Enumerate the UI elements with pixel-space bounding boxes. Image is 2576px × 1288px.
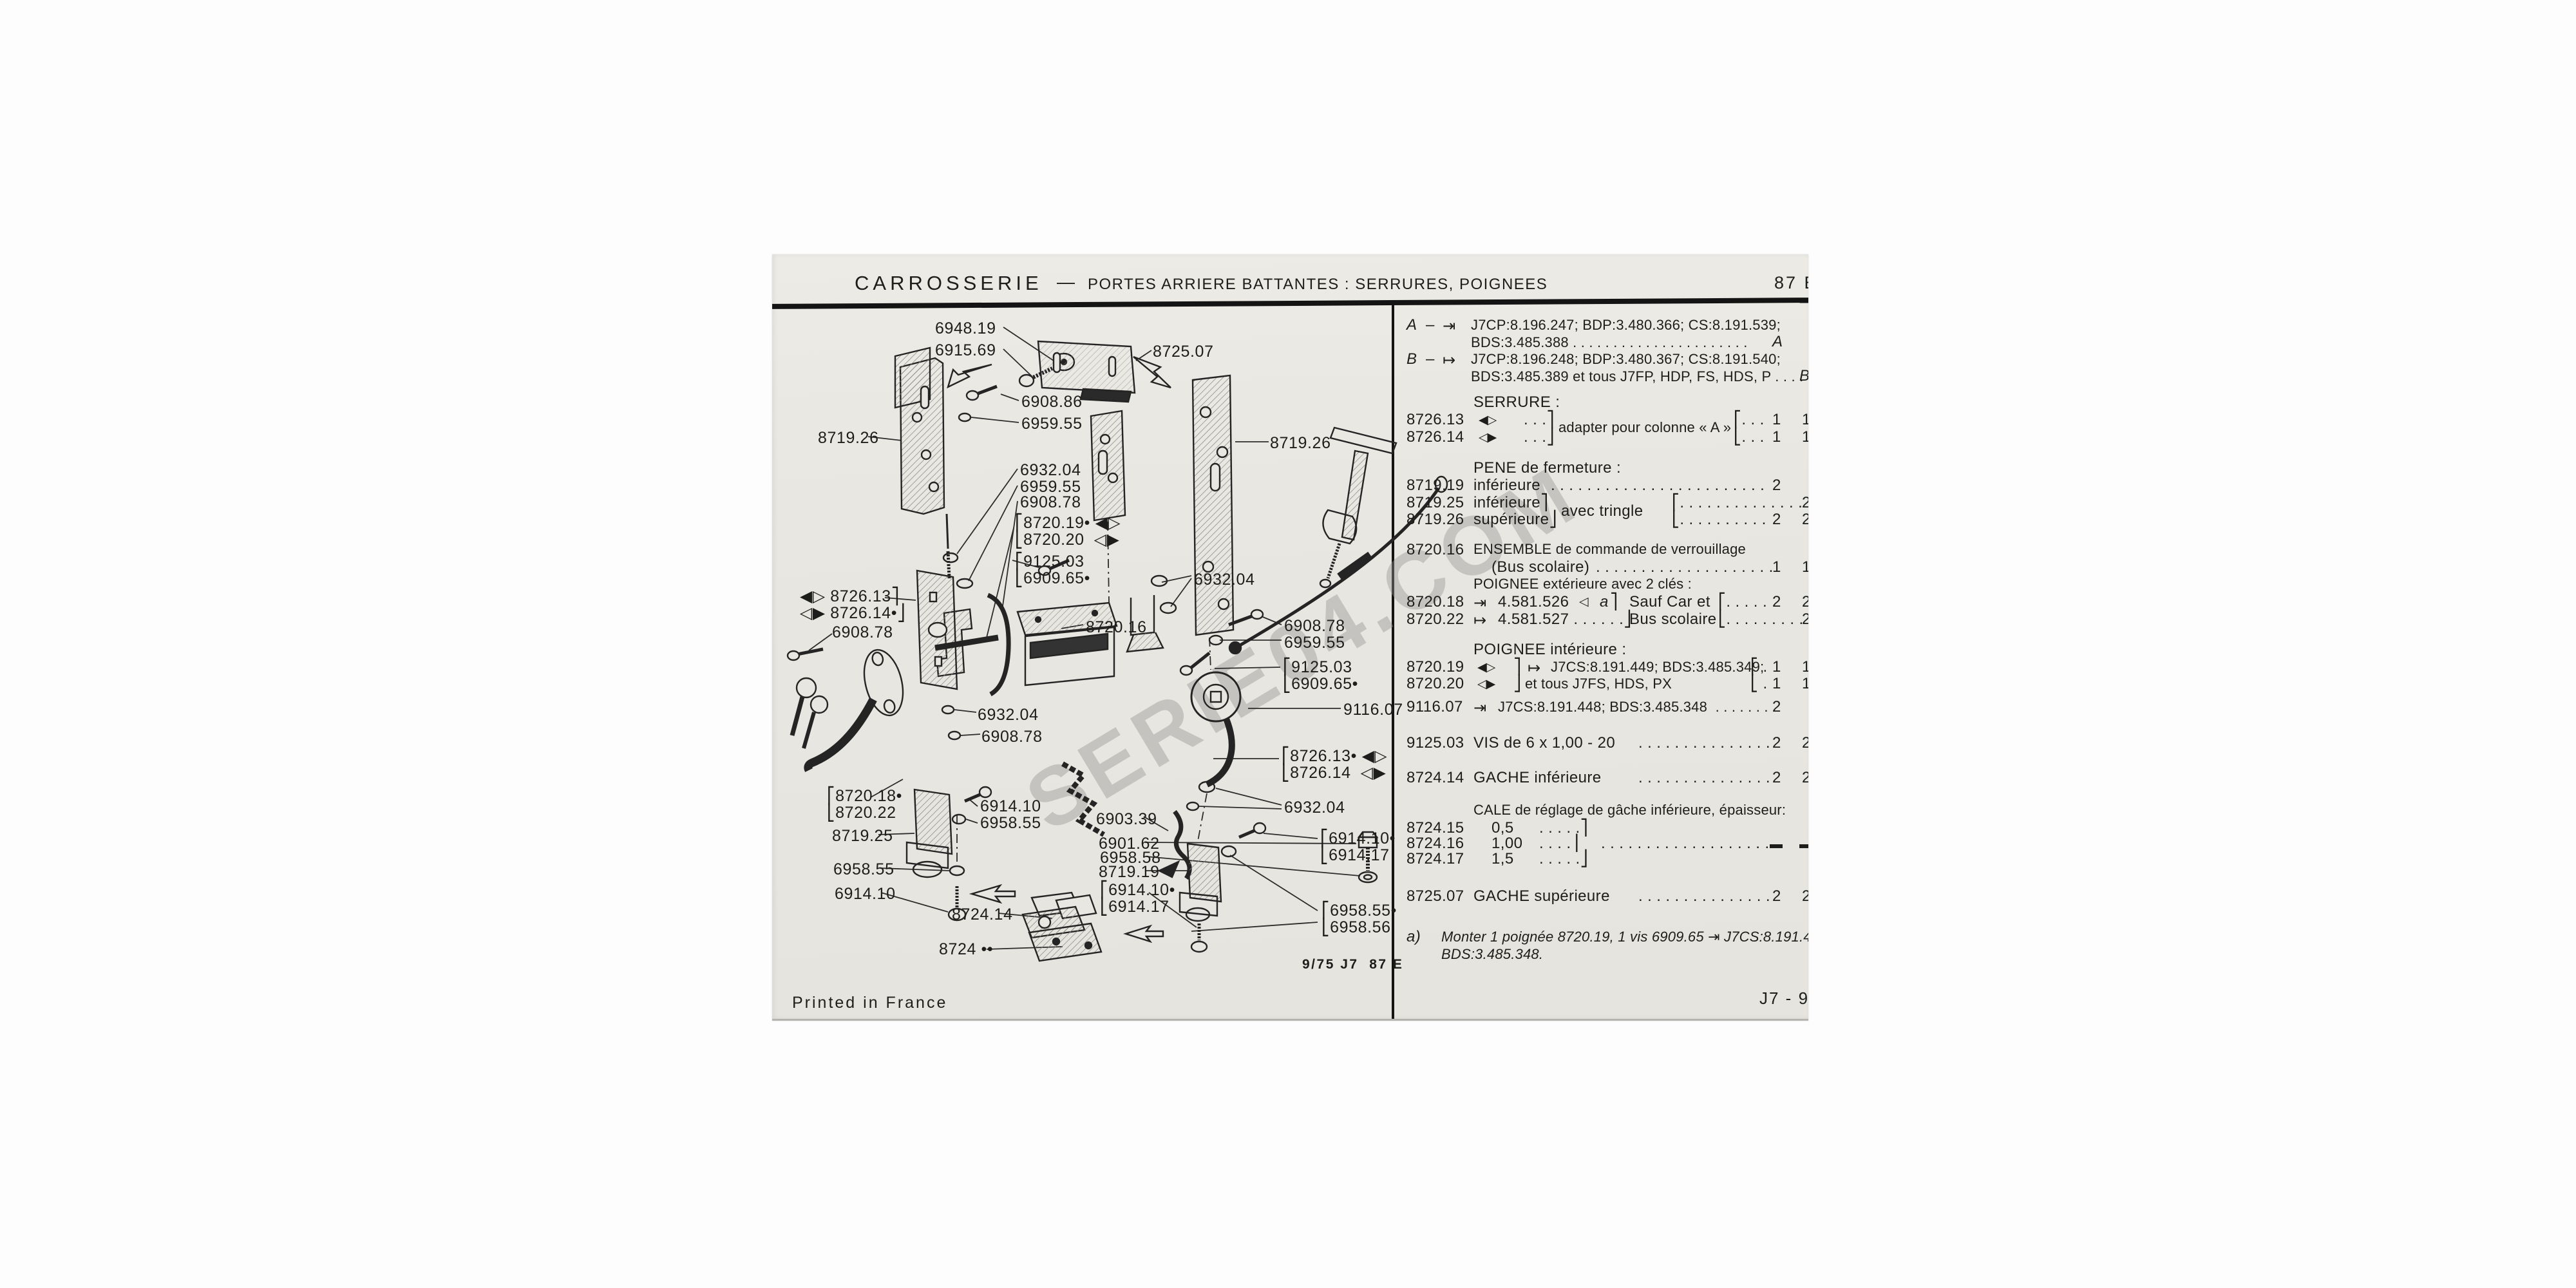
part-label: ⎣8720.22 <box>827 804 896 822</box>
part-label: ⎡8720.18• <box>827 787 902 806</box>
part-label: ⎡6914.10• <box>1320 829 1396 848</box>
part-label: 8719.26 <box>818 429 879 448</box>
list-text: 8720.20 <box>1406 676 1464 692</box>
part-label: 8719.19 <box>1099 863 1160 882</box>
part-label: ⎣8720.20 ◁▶ <box>1015 531 1119 549</box>
printed-in-france: Printed in France <box>792 994 947 1012</box>
list-text: 1 <box>1802 429 1808 446</box>
list-text: 8719.26 <box>1406 511 1464 528</box>
part-label: 9116.07 <box>1343 701 1403 719</box>
list-text: . . . . .⎦ <box>1539 851 1588 867</box>
list-text: (Bus scolaire) <box>1492 559 1589 576</box>
list-text: . . .⎦ <box>1524 429 1555 446</box>
catalog-page: CARROSSERIE — PORTES ARRIERE BATTANTES :… <box>772 254 1808 1021</box>
list-text: Sauf Car et <box>1629 594 1710 611</box>
list-text: 8720.19 <box>1406 659 1464 676</box>
list-text: ⎣. . . . . . . . . . <box>1672 511 1766 528</box>
list-text: A <box>1772 334 1783 350</box>
part-label: ⎡6914.10• <box>1100 881 1175 900</box>
part-label: ⎡6958.55• <box>1321 902 1397 920</box>
part-label: 6959.55 <box>1021 415 1083 433</box>
list-text: supérieure⎦ <box>1473 511 1557 528</box>
list-text: 2 <box>1772 511 1781 528</box>
list-text: BDS:3.485.389 et tous J7FP, HDP, FS, HDS… <box>1471 369 1808 384</box>
list-text: ⎡ . <box>1750 659 1768 676</box>
part-label: 9/75 J7 87 E <box>1302 957 1403 972</box>
list-text: ↦ <box>1528 660 1541 677</box>
list-text: ▬ <box>1770 837 1783 851</box>
part-label: ⎡9125.03 <box>1015 553 1084 571</box>
list-text: 2 <box>1802 594 1808 611</box>
list-text: 8719.19 <box>1406 477 1464 494</box>
part-label: 6908.78 <box>832 623 893 642</box>
list-text: – <box>1426 351 1435 368</box>
list-text: B <box>1406 351 1417 368</box>
list-text: PENE de fermeture : <box>1473 460 1621 477</box>
list-text: 1 <box>1802 676 1808 692</box>
part-label: 8725.07 <box>1153 343 1214 361</box>
list-text: ENSEMBLE de commande de verrouillage <box>1473 542 1746 557</box>
list-text: 2 <box>1772 735 1781 752</box>
list-text: 8719.25 <box>1406 495 1464 511</box>
list-text: ◀▷ <box>1477 661 1495 675</box>
list-text: . . . . . . . . . . . . . . . <box>1638 735 1770 752</box>
part-label: 6932.04 <box>1020 461 1081 480</box>
part-label: 6915.69 <box>935 341 996 360</box>
list-text: SERRURE : <box>1473 394 1560 411</box>
list-text: . . .⎤ <box>1524 412 1555 428</box>
list-text: 2 <box>1802 495 1808 511</box>
list-text: ◀▷ <box>1479 414 1496 428</box>
list-text: POIGNEE extérieure avec 2 clés : <box>1473 576 1692 592</box>
list-text: GACHE inférieure <box>1473 770 1601 786</box>
list-text: . . . . . . . . . . . . . . . <box>1638 888 1770 905</box>
list-text: 1 <box>1772 676 1781 692</box>
list-text: ⎣. . . . . . . . . <box>1718 611 1804 628</box>
part-label: ⎣6914.17 <box>1320 846 1390 865</box>
part-label: ⎣8726.14 ◁▶ <box>1282 764 1386 782</box>
part-label: 8719.25 <box>832 827 893 846</box>
part-label: 6958.55 <box>833 860 895 879</box>
part-label: 6914.10 <box>835 885 896 904</box>
list-text: – <box>1426 317 1435 334</box>
list-text: CALE de réglage de gâche inférieure, épa… <box>1473 802 1786 818</box>
list-text: A <box>1406 317 1417 334</box>
list-text: 9116.07 <box>1406 699 1463 715</box>
list-text: 2 <box>1802 770 1808 786</box>
part-label: 6948.19 <box>935 319 996 338</box>
part-label: 8724.14 <box>952 905 1013 924</box>
screenshot-root: { "header": { "title_main": "CARROSSERIE… <box>0 0 2576 1288</box>
list-text: 2 <box>1802 735 1808 752</box>
list-text: J7CS:8.191.449; BDS:3.485.349; <box>1551 659 1764 675</box>
list-text: 2 <box>1802 511 1808 528</box>
list-text: . . . . . . . . . . . . . . . . . . . . <box>1596 559 1774 576</box>
list-text: a) <box>1406 929 1421 945</box>
list-text: a <box>1600 594 1609 611</box>
part-label: 6903.39 <box>1096 810 1157 829</box>
list-text: J7CP:8.196.248; BDP:3.480.367; CS:8.191.… <box>1471 352 1781 367</box>
part-label: ⎡8726.13• ◀▷ <box>1282 747 1387 766</box>
list-text: J7CP:8.196.247; BDP:3.480.366; CS:8.191.… <box>1471 317 1781 333</box>
list-text: 1 <box>1802 659 1808 676</box>
list-text: ⎤ <box>1513 659 1521 676</box>
list-text: ⎡. . . <box>1734 412 1765 428</box>
list-text: ⇥ <box>1473 595 1487 612</box>
list-text: 8720.16 <box>1406 542 1464 558</box>
list-text: 8725.07 <box>1406 888 1464 905</box>
list-text: . . . . . . . . . . . . . . . . . . . . … <box>1551 477 1765 494</box>
list-text: ⇥ <box>1443 318 1456 335</box>
list-text: ◁▶ <box>1479 431 1496 445</box>
part-label: ⎣6958.56 <box>1321 918 1391 937</box>
list-text: 1,5 <box>1492 851 1514 867</box>
list-text: GACHE supérieure <box>1473 888 1610 905</box>
part-label: 6908.78 <box>1284 617 1345 636</box>
list-text: adapter pour colonne « A » <box>1558 420 1731 435</box>
list-text: 2 <box>1802 888 1808 905</box>
part-label: 8720.16 <box>1086 618 1147 637</box>
list-text: . . . . . . . . . . . . . . . <box>1638 770 1770 786</box>
list-text: ▬ <box>1799 837 1808 851</box>
list-text: inférieure⎤ <box>1473 495 1548 511</box>
list-text: ⎦ <box>1513 676 1521 692</box>
list-text: 2 <box>1772 594 1781 611</box>
list-text: BDS:3.485.388 . . . . . . . . . . . . . … <box>1471 335 1748 350</box>
list-text: ⎤ <box>1610 594 1618 611</box>
part-label: 6932.04 <box>1194 571 1255 589</box>
list-text: BDS:3.485.348. <box>1441 947 1543 962</box>
list-text: 1 <box>1772 659 1781 676</box>
part-label: ⎣6909.65• <box>1015 569 1090 588</box>
part-label: 6932.04 <box>1284 799 1345 817</box>
list-text: 8724.14 <box>1406 770 1464 786</box>
list-text: 8720.22 <box>1406 611 1464 628</box>
list-text: 4.581.526 <box>1498 594 1569 611</box>
part-label: 6914.10 <box>980 797 1041 816</box>
list-text: avec tringle <box>1561 503 1643 520</box>
list-text: 4.581.527 . . . . . .⎦ <box>1498 611 1632 628</box>
list-text: POIGNEE intérieure : <box>1473 641 1626 658</box>
list-text: J7CS:8.191.448; BDS:3.485.348 . . . . . … <box>1498 699 1776 715</box>
part-label: 6908.78 <box>1020 493 1081 512</box>
part-label: 6958.55 <box>980 814 1041 833</box>
list-text: 2 <box>1772 699 1781 715</box>
list-text: ◁ <box>1579 596 1588 609</box>
list-text: 1 <box>1772 559 1781 576</box>
list-text: 2 <box>1772 770 1781 786</box>
list-text: 1 <box>1802 412 1808 428</box>
part-label: 6959.55 <box>1284 634 1345 652</box>
list-text: Monter 1 poignée 8720.19, 1 vis 6909.65 … <box>1441 929 1808 945</box>
list-text: ↦ <box>1473 612 1487 629</box>
list-text: . . . . . . . . . . . . . . . . . . . <box>1601 835 1770 852</box>
list-text: 9125.03 <box>1406 735 1464 752</box>
list-text: 1 <box>1802 559 1808 576</box>
page-footer-ref: J7 - 9/75 <box>1759 989 1808 1009</box>
list-text: ◁▶ <box>1477 678 1495 692</box>
part-label: 6932.04 <box>978 706 1039 724</box>
list-text: 1 <box>1772 429 1781 446</box>
list-text: 1 <box>1772 412 1781 428</box>
list-text: ⎣. . . <box>1734 429 1765 446</box>
part-label: 6908.78 <box>981 728 1043 746</box>
part-label: ⎣6914.17 <box>1100 898 1170 916</box>
list-text: et tous J7FS, HDS, PX <box>1525 676 1672 692</box>
part-label: ⎣6909.65• <box>1283 675 1358 694</box>
list-text: ↦ <box>1443 352 1456 369</box>
list-text: 2 <box>1802 611 1808 628</box>
part-label: ◀▷ 8726.13⎤ <box>800 587 900 606</box>
part-label: 6908.86 <box>1021 393 1083 412</box>
list-text: B <box>1799 368 1808 384</box>
list-text: ⎡. . . . . . . . . . . . . . <box>1672 495 1803 511</box>
list-text: VIS de 6 x 1,00 - 20 <box>1473 735 1615 752</box>
list-text: 8726.14 <box>1406 429 1464 446</box>
part-label: ◁▶ 8726.14•⎦ <box>800 604 905 623</box>
list-text: Bus scolaire <box>1629 611 1717 628</box>
list-text: 8724.17 <box>1406 851 1464 867</box>
part-label: 8719.26 <box>1270 434 1331 453</box>
list-text: 2 <box>1772 888 1781 905</box>
list-text: ⎣ . <box>1750 676 1768 692</box>
part-label: ⎡9125.03 <box>1283 658 1352 677</box>
part-label: 8724 •• <box>939 940 993 959</box>
list-text: ⎡. . . . . <box>1718 594 1767 611</box>
part-label: ⎡8720.19• ◀▷ <box>1015 514 1121 533</box>
list-text: ⇥ <box>1473 700 1487 717</box>
list-text: 2 <box>1772 477 1781 494</box>
list-text: inférieure <box>1473 477 1540 494</box>
list-text: 8726.13 <box>1406 412 1464 428</box>
list-text: 8720.18 <box>1406 594 1464 611</box>
